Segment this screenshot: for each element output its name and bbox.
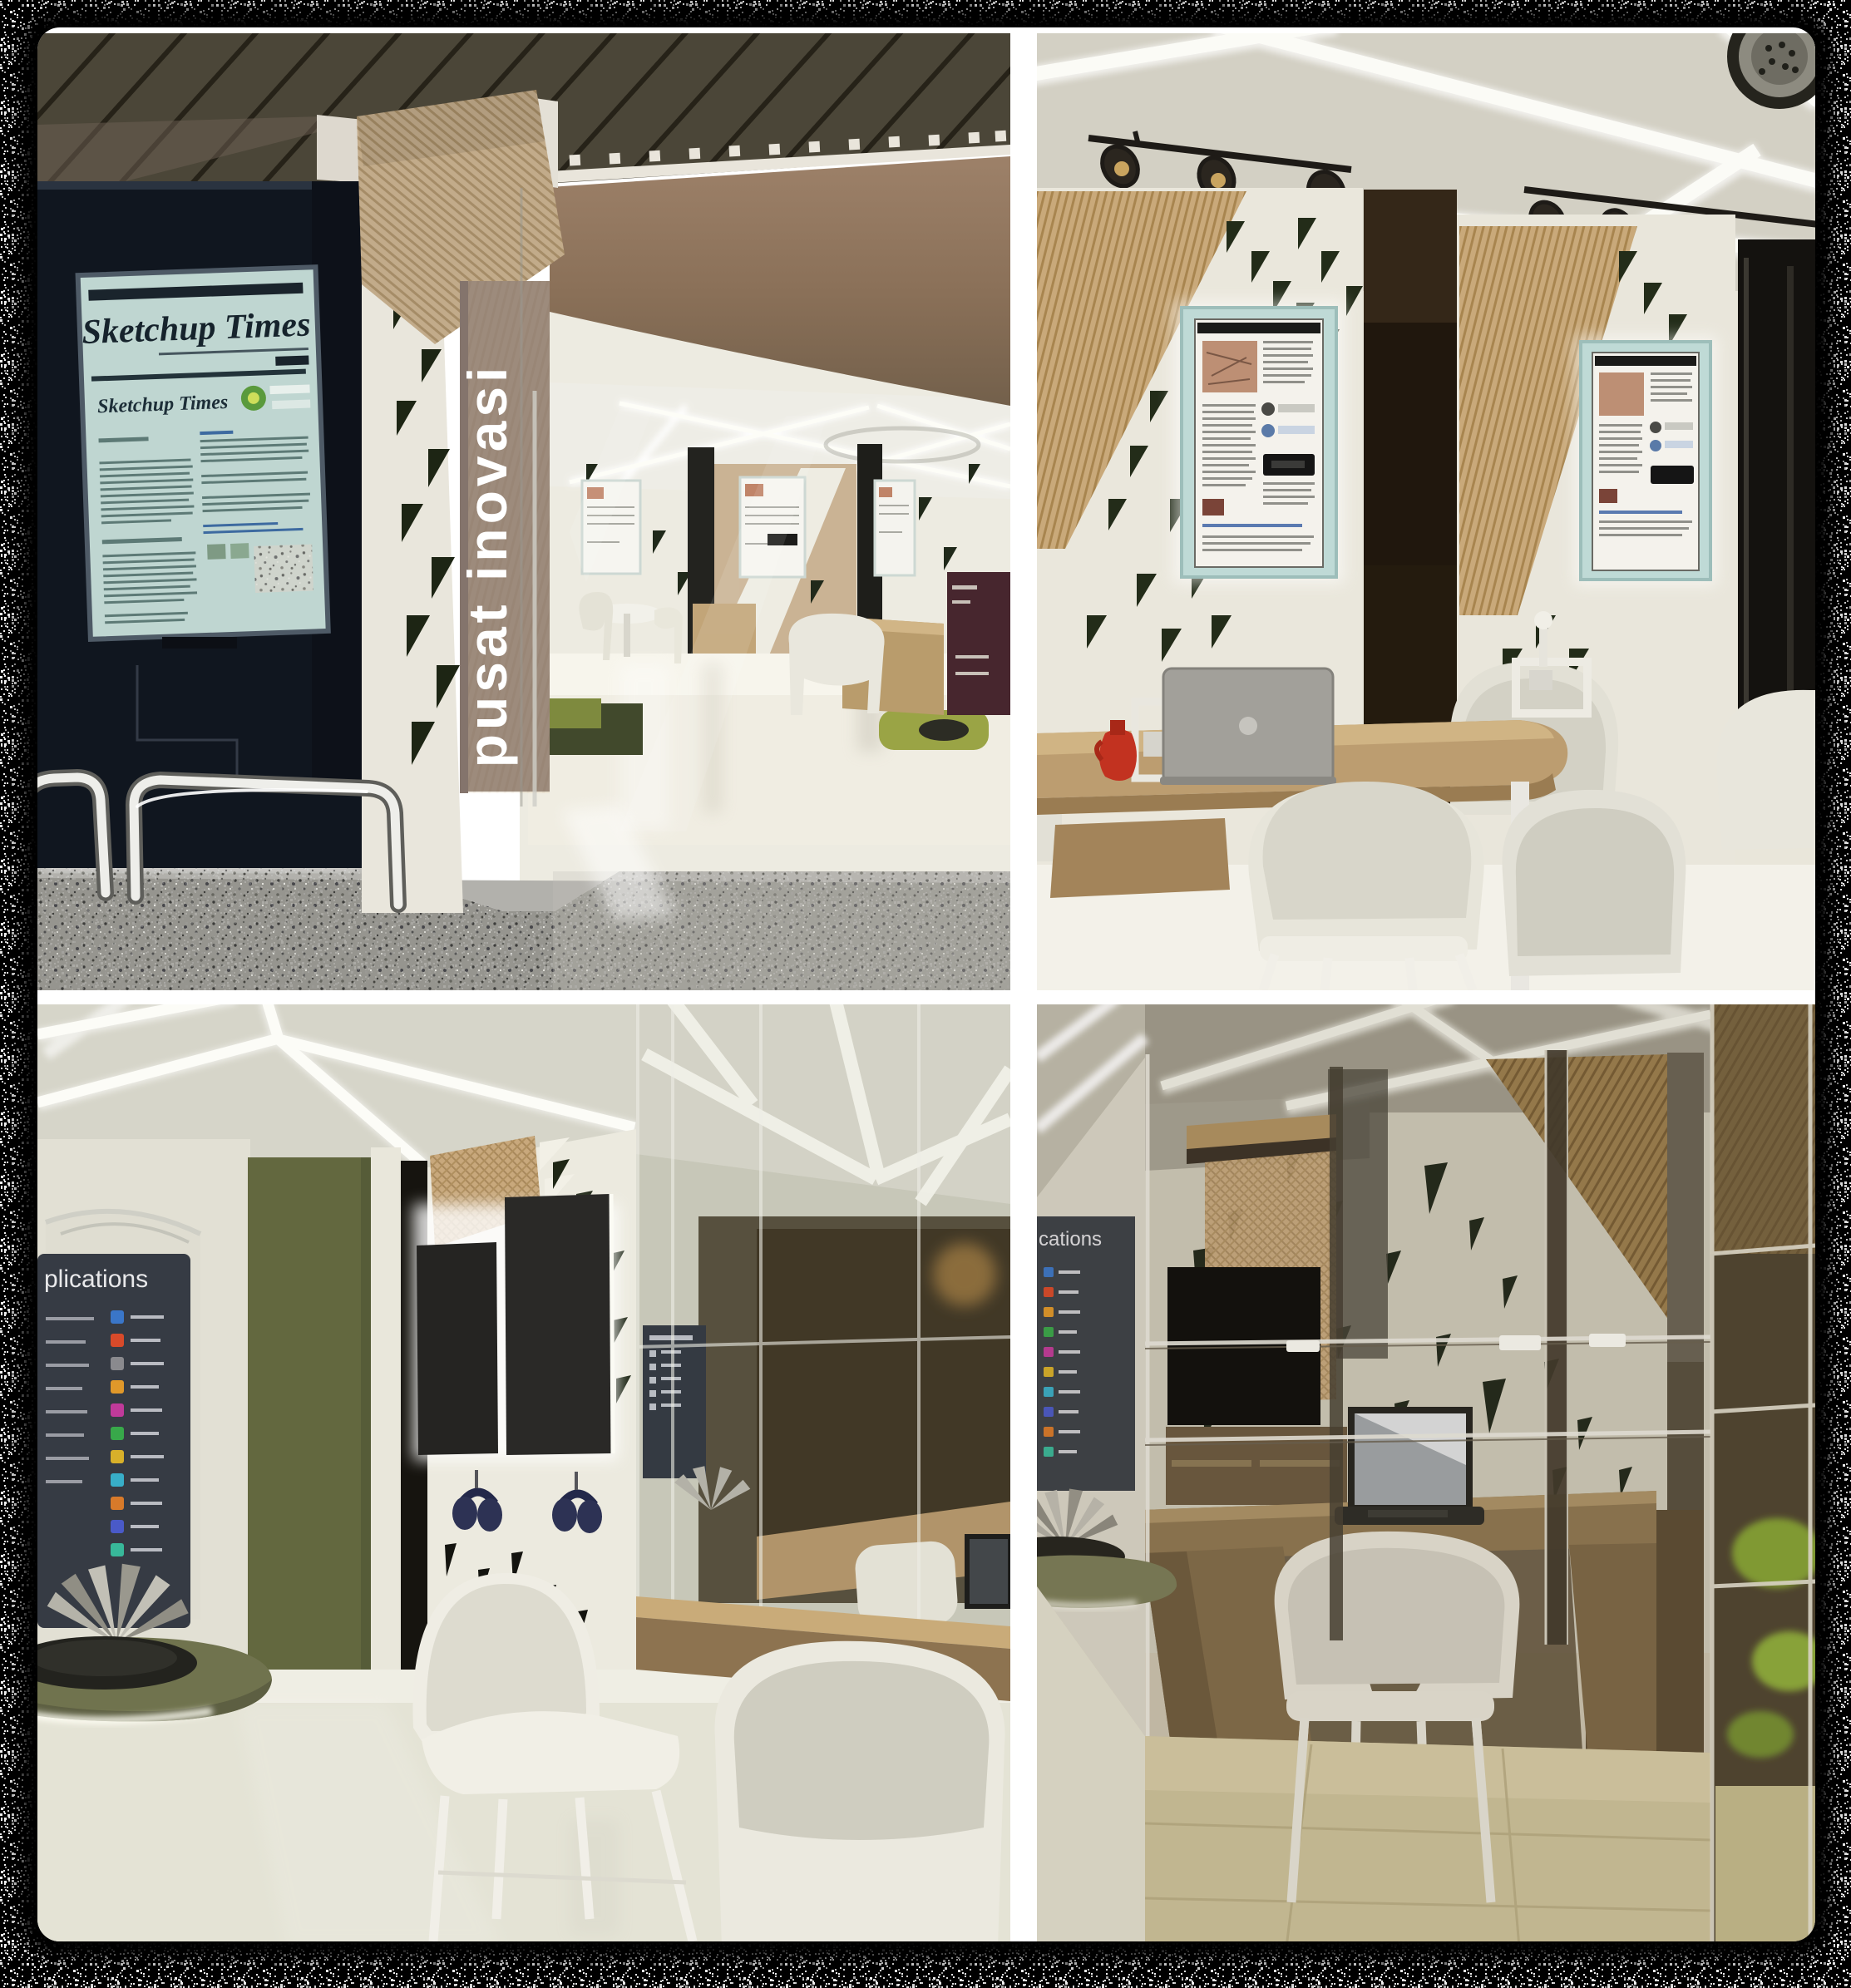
svg-text:Sketchup Times: Sketchup Times [81, 305, 311, 352]
svg-text:Sketchup Times: Sketchup Times [97, 392, 229, 417]
svg-text:pusat inovasi: pusat inovasi [457, 363, 518, 768]
svg-text:plications: plications [44, 1265, 148, 1293]
